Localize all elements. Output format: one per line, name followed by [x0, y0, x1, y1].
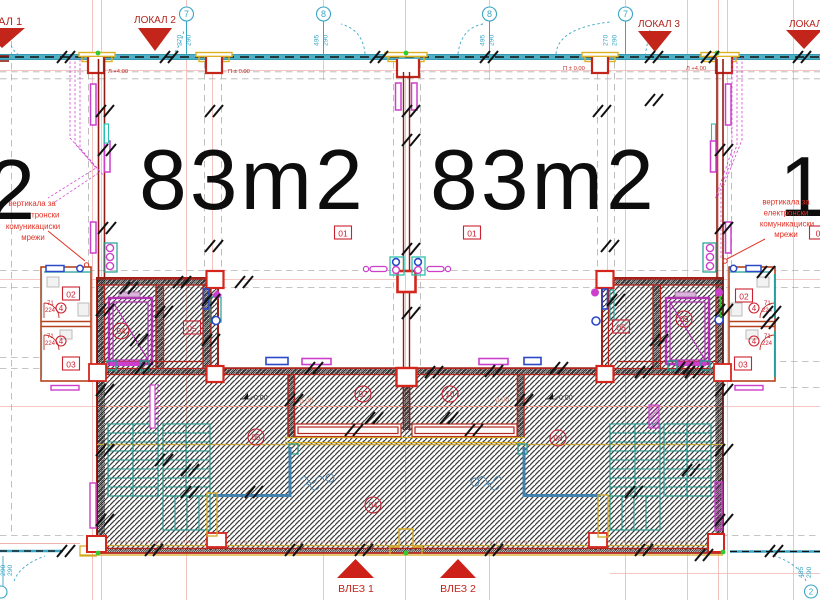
svg-text:Л +4.00: Л +4.00: [686, 66, 706, 72]
svg-text:270: 270: [603, 34, 610, 46]
svg-text:10: 10: [446, 390, 455, 399]
svg-text:224: 224: [45, 341, 56, 347]
svg-text:04: 04: [117, 327, 126, 336]
svg-text:4: 4: [752, 337, 757, 346]
svg-text:71: 71: [764, 301, 771, 307]
svg-text:01: 01: [467, 229, 477, 239]
svg-text:83m2: 83m2: [430, 133, 657, 228]
svg-text:+0.00: +0.00: [555, 395, 573, 402]
svg-text:01: 01: [338, 229, 348, 239]
svg-text:71: 71: [47, 301, 54, 307]
svg-text:09: 09: [680, 315, 689, 324]
svg-text:2: 2: [0, 143, 35, 238]
svg-text:224: 224: [762, 341, 773, 347]
svg-text:270: 270: [177, 34, 184, 46]
svg-text:04: 04: [369, 501, 378, 510]
svg-text:71: 71: [47, 334, 54, 340]
svg-text:8: 8: [487, 9, 492, 19]
svg-text:П ± 0.00: П ± 0.00: [563, 66, 585, 72]
svg-text:02: 02: [66, 290, 76, 300]
svg-text:+0.00: +0.00: [250, 395, 268, 402]
svg-text:05: 05: [616, 323, 626, 333]
svg-text:мрежи: мрежи: [774, 230, 798, 239]
svg-text:290: 290: [806, 566, 813, 578]
svg-text:ВЛЕЗ 2: ВЛЕЗ 2: [440, 583, 476, 595]
svg-text:електронски: електронски: [764, 209, 809, 218]
svg-text:ВЛЕЗ 1: ВЛЕЗ 1: [338, 583, 374, 595]
svg-text:0: 0: [816, 229, 820, 239]
svg-text:71: 71: [764, 334, 771, 340]
svg-text:290: 290: [489, 34, 496, 46]
svg-text:ЛОКАЛ 3: ЛОКАЛ 3: [638, 19, 680, 30]
svg-text:8: 8: [321, 9, 326, 19]
svg-text:Л +4.00: Л +4.00: [108, 69, 128, 75]
svg-text:4: 4: [752, 304, 757, 313]
svg-text:290: 290: [323, 34, 330, 46]
svg-text:290: 290: [612, 34, 619, 46]
svg-text:290: 290: [186, 34, 193, 46]
svg-text:08: 08: [554, 434, 563, 443]
svg-text:4: 4: [59, 337, 64, 346]
svg-text:290: 290: [7, 564, 14, 576]
svg-text:ЛОКАЛ 2: ЛОКАЛ 2: [134, 15, 176, 26]
svg-text:224: 224: [45, 308, 56, 314]
svg-text:7: 7: [184, 9, 189, 19]
svg-text:83m2: 83m2: [139, 133, 366, 228]
svg-text:вертикала за: вертикала за: [762, 198, 810, 207]
svg-text:05: 05: [187, 324, 197, 334]
svg-text:7: 7: [623, 9, 628, 19]
svg-text:07: 07: [359, 390, 368, 399]
svg-text:П ± 0.00: П ± 0.00: [228, 69, 250, 75]
svg-text:комуникациски: комуникациски: [760, 220, 814, 229]
svg-text:02: 02: [739, 292, 749, 302]
svg-text:495: 495: [314, 34, 321, 46]
svg-text:4: 4: [59, 304, 64, 313]
svg-text:03: 03: [738, 360, 748, 370]
svg-text:ЛОКАЛ 1: ЛОКАЛ 1: [0, 16, 22, 28]
svg-text:2: 2: [809, 588, 814, 597]
svg-text:290: 290: [0, 564, 7, 576]
svg-text:05: 05: [252, 433, 261, 442]
svg-text:ЛОКАЛ 4: ЛОКАЛ 4: [789, 19, 820, 30]
svg-text:03: 03: [66, 360, 76, 370]
svg-text:495: 495: [480, 34, 487, 46]
